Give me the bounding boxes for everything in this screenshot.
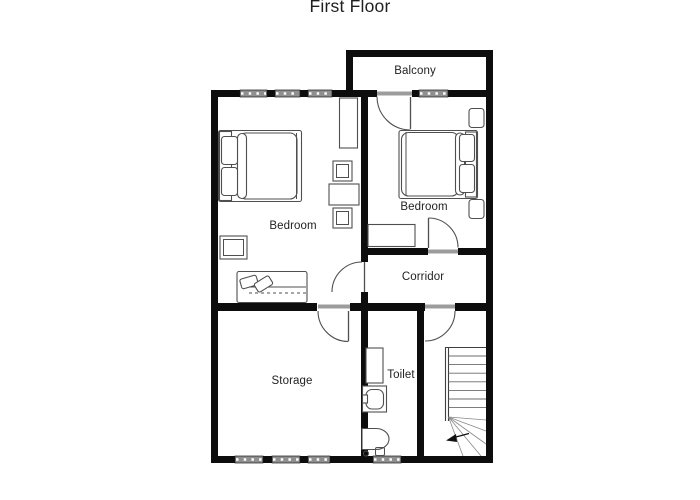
room-label-balcony: Balcony	[394, 65, 436, 77]
room-label-toilet: Toilet	[387, 369, 414, 381]
window	[235, 456, 263, 463]
double-bed-icon	[399, 131, 478, 199]
wall-segment	[211, 90, 218, 463]
wardrobe-icon	[340, 98, 358, 148]
bathroom-cabinet-icon	[366, 348, 383, 383]
wall-segment	[448, 90, 486, 97]
wall-segment	[211, 456, 235, 463]
window	[240, 90, 267, 97]
window	[275, 90, 300, 97]
wall-segment	[401, 456, 493, 463]
room-label-corridor: Corridor	[402, 271, 444, 283]
window	[373, 456, 401, 463]
wall-segment	[350, 303, 425, 311]
wall-segment	[346, 50, 493, 57]
floor-plan-drawing	[0, 0, 700, 500]
door-bedroom-left-to-storage	[318, 305, 350, 342]
toilet-fixtures	[362, 348, 389, 456]
table-icon	[329, 184, 359, 205]
chair-icon	[333, 208, 352, 228]
wall-segment	[300, 90, 308, 97]
wall-segment	[417, 311, 424, 456]
wall-segment	[211, 90, 240, 97]
sink-icon	[363, 386, 387, 412]
wall-segment	[346, 50, 353, 97]
wall-segment	[412, 90, 419, 97]
room-label-storage: Storage	[272, 375, 313, 387]
wall-segment	[263, 456, 272, 463]
wall-segment	[368, 248, 428, 255]
toilet-icon	[362, 429, 389, 450]
window	[308, 90, 332, 97]
double-bed-icon	[219, 131, 302, 202]
window	[308, 456, 330, 463]
dresser-icon	[368, 225, 415, 247]
wall-segment	[455, 303, 486, 311]
wall-segment	[300, 456, 308, 463]
nightstand-icon	[469, 109, 484, 128]
wall-segment	[486, 50, 493, 463]
nightstand-icon	[469, 200, 484, 219]
window	[419, 90, 448, 97]
wall-segment	[361, 90, 368, 262]
stair-steps	[449, 356, 487, 408]
door-balcony-to-bedroom	[377, 92, 412, 131]
room-label-bedroom-right: Bedroom	[400, 201, 447, 213]
cabinet-icon	[220, 236, 247, 259]
door-corridor-to-bedroom-left	[332, 262, 365, 292]
staircase	[446, 348, 487, 457]
wall-segment	[330, 456, 373, 463]
window	[272, 456, 300, 463]
door-corridor-to-stairs	[425, 305, 455, 342]
wall-segment	[267, 90, 275, 97]
wall-segment	[458, 248, 486, 255]
chair-icon	[333, 161, 352, 181]
wall-segment	[211, 303, 317, 311]
room-label-bedroom-left: Bedroom	[269, 220, 316, 232]
door-corridor-to-bedroom-right	[428, 218, 458, 254]
daybed-icon	[237, 272, 307, 303]
floor-plan-page: First Floor	[0, 0, 700, 500]
